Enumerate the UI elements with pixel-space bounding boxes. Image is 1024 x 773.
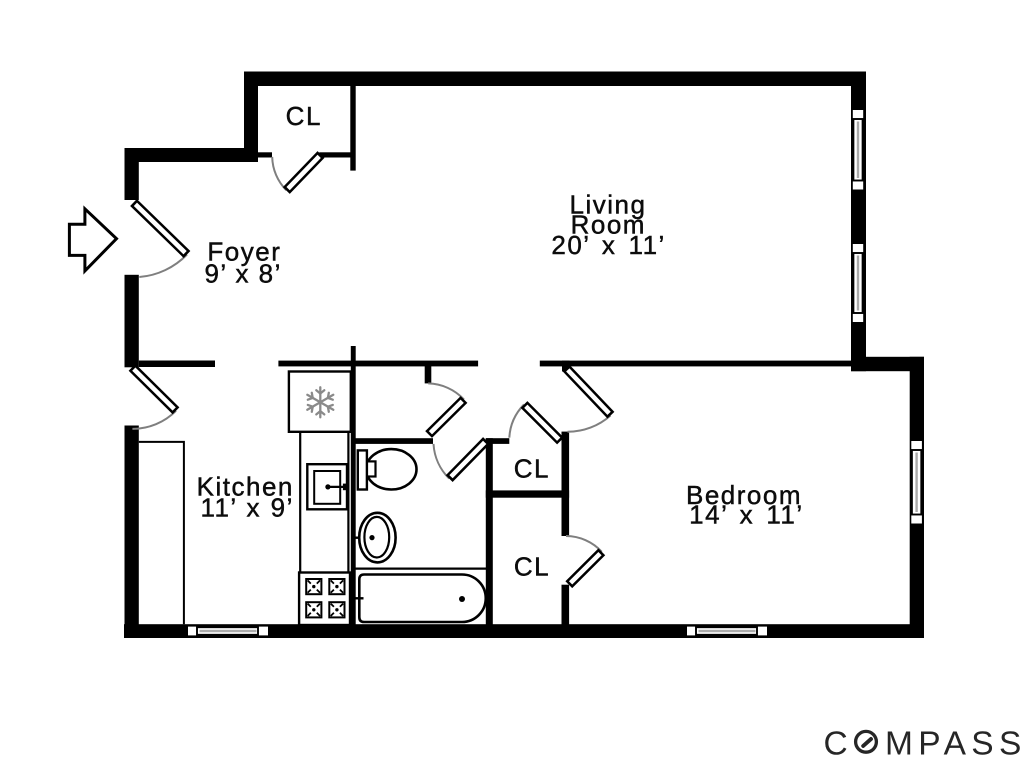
svg-text:CL: CL [514,454,550,484]
svg-text:14’ x 11’: 14’ x 11’ [689,500,803,530]
svg-text:11’ x 9’: 11’ x 9’ [200,492,294,522]
svg-text:MPASS: MPASS [885,726,1024,763]
svg-text:9’ x 8’: 9’ x 8’ [204,259,281,289]
svg-text:CL: CL [286,101,322,131]
svg-text:CL: CL [514,552,550,582]
svg-text:20’ x 11’: 20’ x 11’ [551,230,665,260]
svg-text:C: C [824,726,854,763]
